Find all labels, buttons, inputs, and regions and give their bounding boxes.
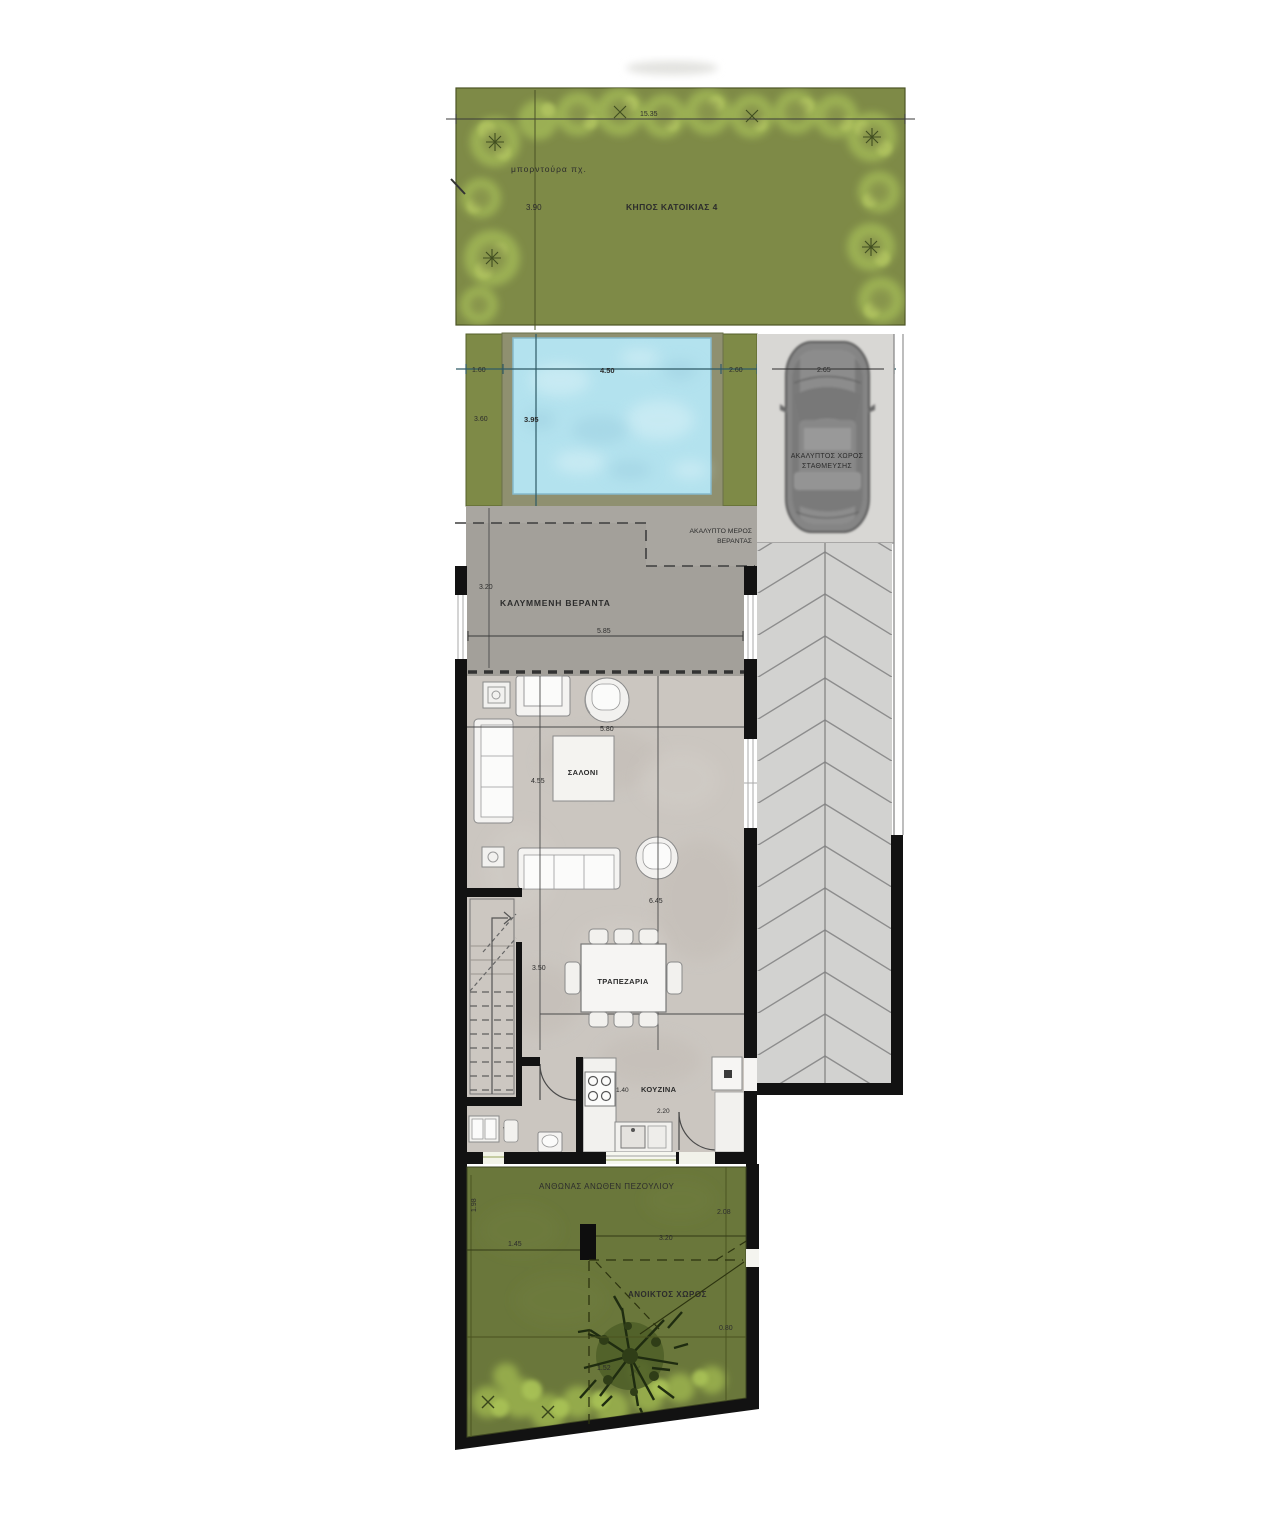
svg-text:6.45: 6.45 bbox=[649, 898, 663, 905]
svg-text:1.45: 1.45 bbox=[508, 1241, 522, 1248]
svg-text:2.65: 2.65 bbox=[817, 367, 831, 374]
svg-text:ΑΝΟΙΚΤΟΣ ΧΩΡΟΣ: ΑΝΟΙΚΤΟΣ ΧΩΡΟΣ bbox=[628, 1290, 707, 1299]
svg-text:3.90: 3.90 bbox=[526, 203, 542, 212]
svg-text:2.60: 2.60 bbox=[729, 367, 743, 374]
svg-text:ΚΟΥΖΙΝΑ: ΚΟΥΖΙΝΑ bbox=[641, 1085, 677, 1094]
svg-text:1.52: 1.52 bbox=[597, 1365, 611, 1372]
svg-text:0.80: 0.80 bbox=[719, 1325, 733, 1332]
svg-text:ΚΗΠΟΣ ΚΑΤΟΙΚΙΑΣ 4: ΚΗΠΟΣ ΚΑΤΟΙΚΙΑΣ 4 bbox=[626, 202, 718, 212]
svg-text:3.60: 3.60 bbox=[474, 416, 488, 423]
svg-text:μπορντούρα πχ.: μπορντούρα πχ. bbox=[511, 164, 587, 174]
svg-text:4.50: 4.50 bbox=[600, 366, 615, 375]
svg-text:3.50: 3.50 bbox=[532, 965, 546, 972]
svg-text:3.20: 3.20 bbox=[479, 584, 493, 591]
svg-text:ΣΑΛΟΝΙ: ΣΑΛΟΝΙ bbox=[568, 768, 598, 777]
svg-text:ΤΡΑΠΕΖΑΡΙΑ: ΤΡΑΠΕΖΑΡΙΑ bbox=[597, 977, 649, 986]
svg-text:1.60: 1.60 bbox=[472, 367, 486, 374]
svg-text:1.40: 1.40 bbox=[616, 1087, 629, 1094]
svg-text:2.20: 2.20 bbox=[657, 1108, 670, 1115]
svg-text:ΑΝΘΩΝΑΣ ΑΝΩΘΕΝ ΠΕΖΟΥΛΙΟΥ: ΑΝΘΩΝΑΣ ΑΝΩΘΕΝ ΠΕΖΟΥΛΙΟΥ bbox=[539, 1182, 675, 1191]
svg-text:ΑΚΑΛΥΠΤΟΣ ΧΩΡΟΣ: ΑΚΑΛΥΠΤΟΣ ΧΩΡΟΣ bbox=[791, 453, 864, 460]
svg-text:ΚΑΛΥΜΜΕΝΗ ΒΕΡΑΝΤΑ: ΚΑΛΥΜΜΕΝΗ ΒΕΡΑΝΤΑ bbox=[500, 598, 611, 608]
svg-text:15.35: 15.35 bbox=[640, 111, 658, 118]
svg-text:2.08: 2.08 bbox=[717, 1209, 731, 1216]
svg-text:3.95: 3.95 bbox=[524, 415, 539, 424]
svg-text:1.98: 1.98 bbox=[471, 1198, 478, 1212]
svg-text:5.85: 5.85 bbox=[597, 628, 611, 635]
svg-text:3.20: 3.20 bbox=[659, 1235, 673, 1242]
svg-text:5.80: 5.80 bbox=[600, 726, 614, 733]
svg-text:ΣΤΑΘΜΕΥΣΗΣ: ΣΤΑΘΜΕΥΣΗΣ bbox=[802, 463, 852, 470]
svg-text:ΒΕΡΑΝΤΑΣ: ΒΕΡΑΝΤΑΣ bbox=[717, 538, 752, 545]
svg-text:ΑΚΑΛΥΠΤΟ ΜΕΡΟΣ: ΑΚΑΛΥΠΤΟ ΜΕΡΟΣ bbox=[690, 528, 753, 535]
svg-text:4.55: 4.55 bbox=[531, 778, 545, 785]
